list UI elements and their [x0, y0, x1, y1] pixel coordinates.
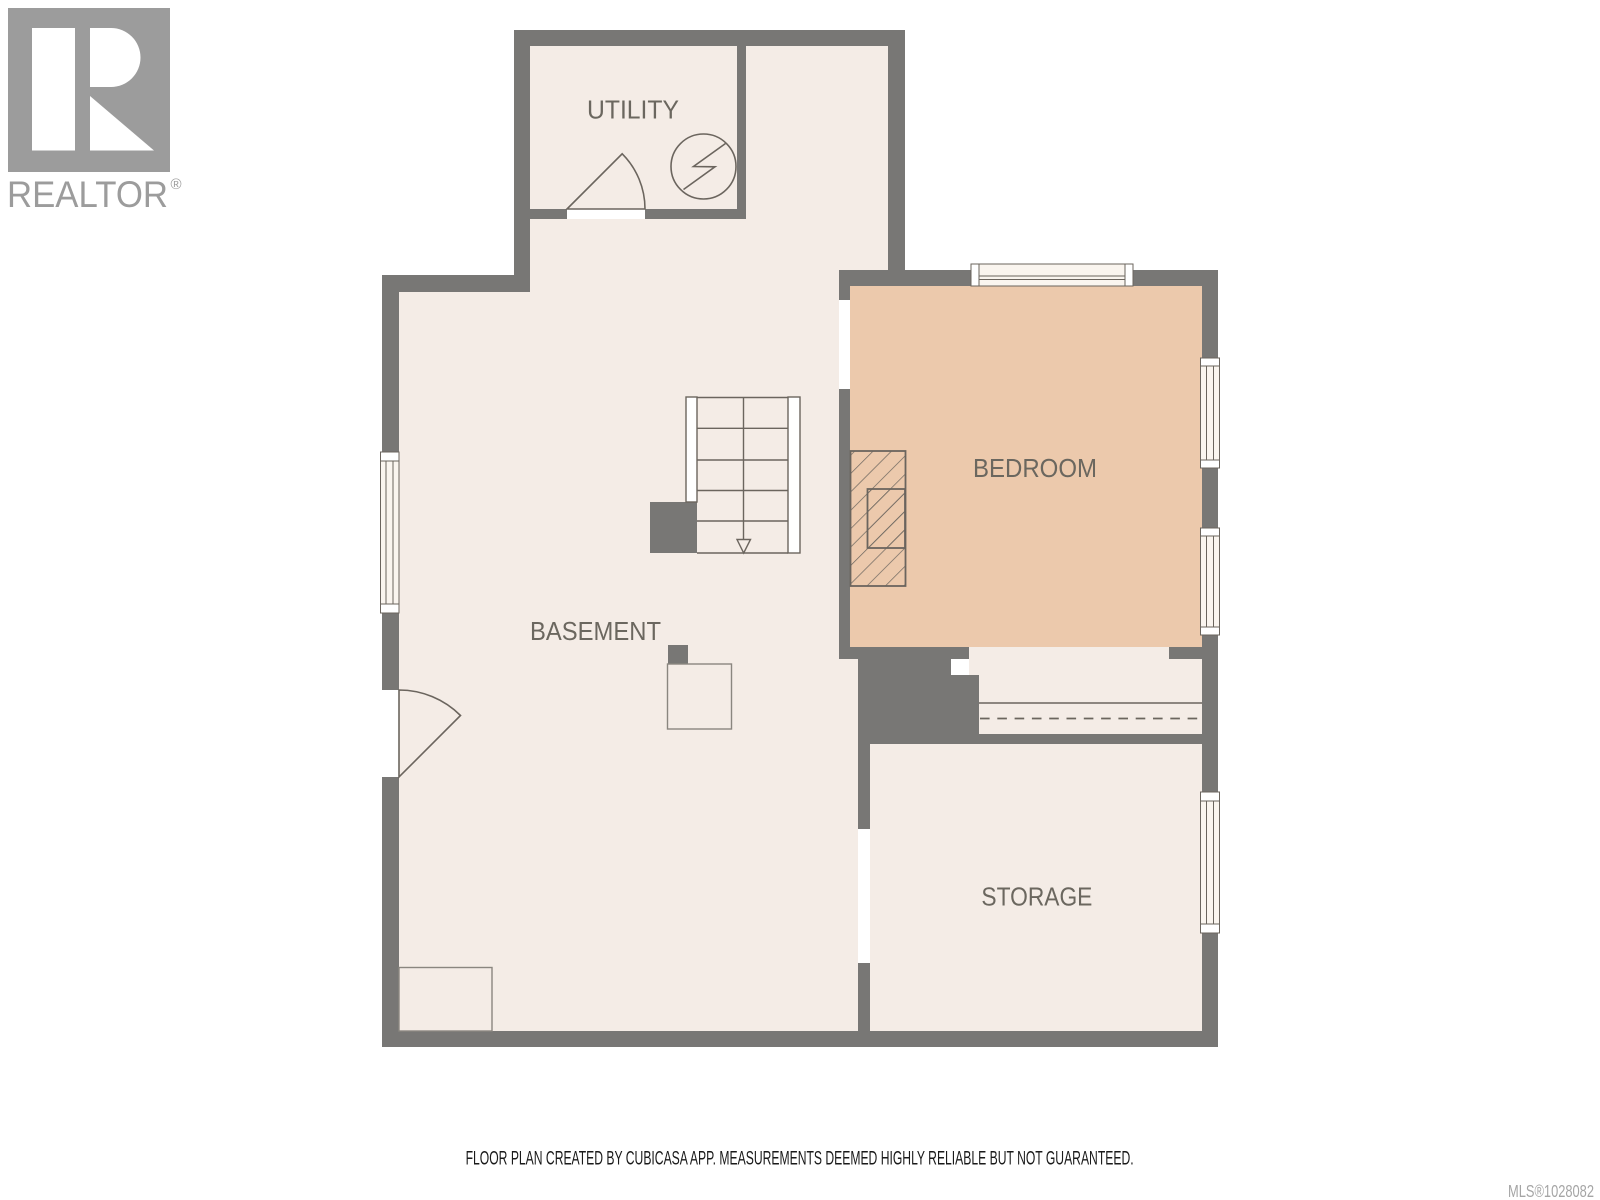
svg-text:BASEMENT: BASEMENT: [530, 616, 661, 646]
svg-text:STORAGE: STORAGE: [981, 881, 1092, 911]
svg-text:UTILITY: UTILITY: [587, 94, 679, 124]
svg-text:®: ®: [171, 176, 182, 193]
svg-text:BEDROOM: BEDROOM: [973, 453, 1097, 483]
svg-text:REALTOR: REALTOR: [7, 174, 168, 215]
svg-text:FLOOR PLAN CREATED BY CUBICASA: FLOOR PLAN CREATED BY CUBICASA APP. MEAS…: [466, 1149, 1134, 1170]
svg-text:MLS®1028082: MLS®1028082: [1508, 1181, 1594, 1200]
